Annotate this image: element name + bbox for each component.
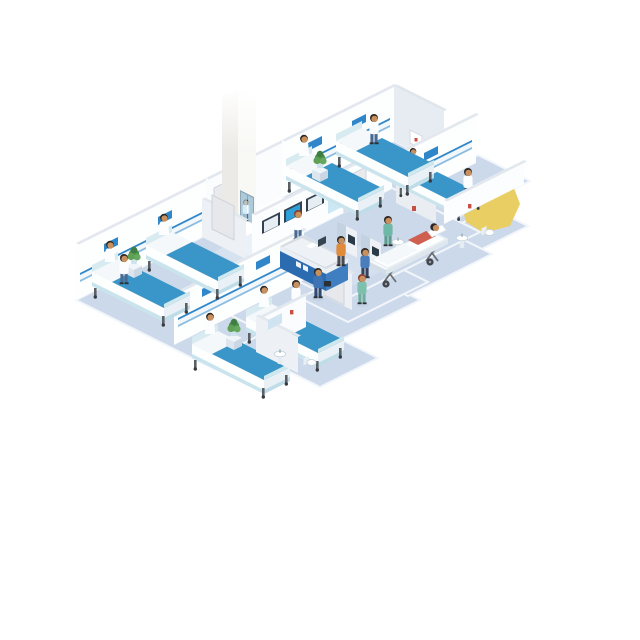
towel-icon [412,206,416,211]
towel-icon [290,310,293,314]
patient-figure [159,214,169,235]
briefcase-icon [324,281,331,287]
isometric-hospital-scene [0,0,640,640]
patient-figure [259,286,269,307]
patient-figure [299,135,309,156]
patient-figure [105,241,115,262]
hospital-ward-illustration: Isometric cutaway illustration of a hosp… [0,0,640,640]
patient-figure [205,313,215,334]
red-cross-icon [415,138,418,142]
towel-icon [468,204,471,208]
